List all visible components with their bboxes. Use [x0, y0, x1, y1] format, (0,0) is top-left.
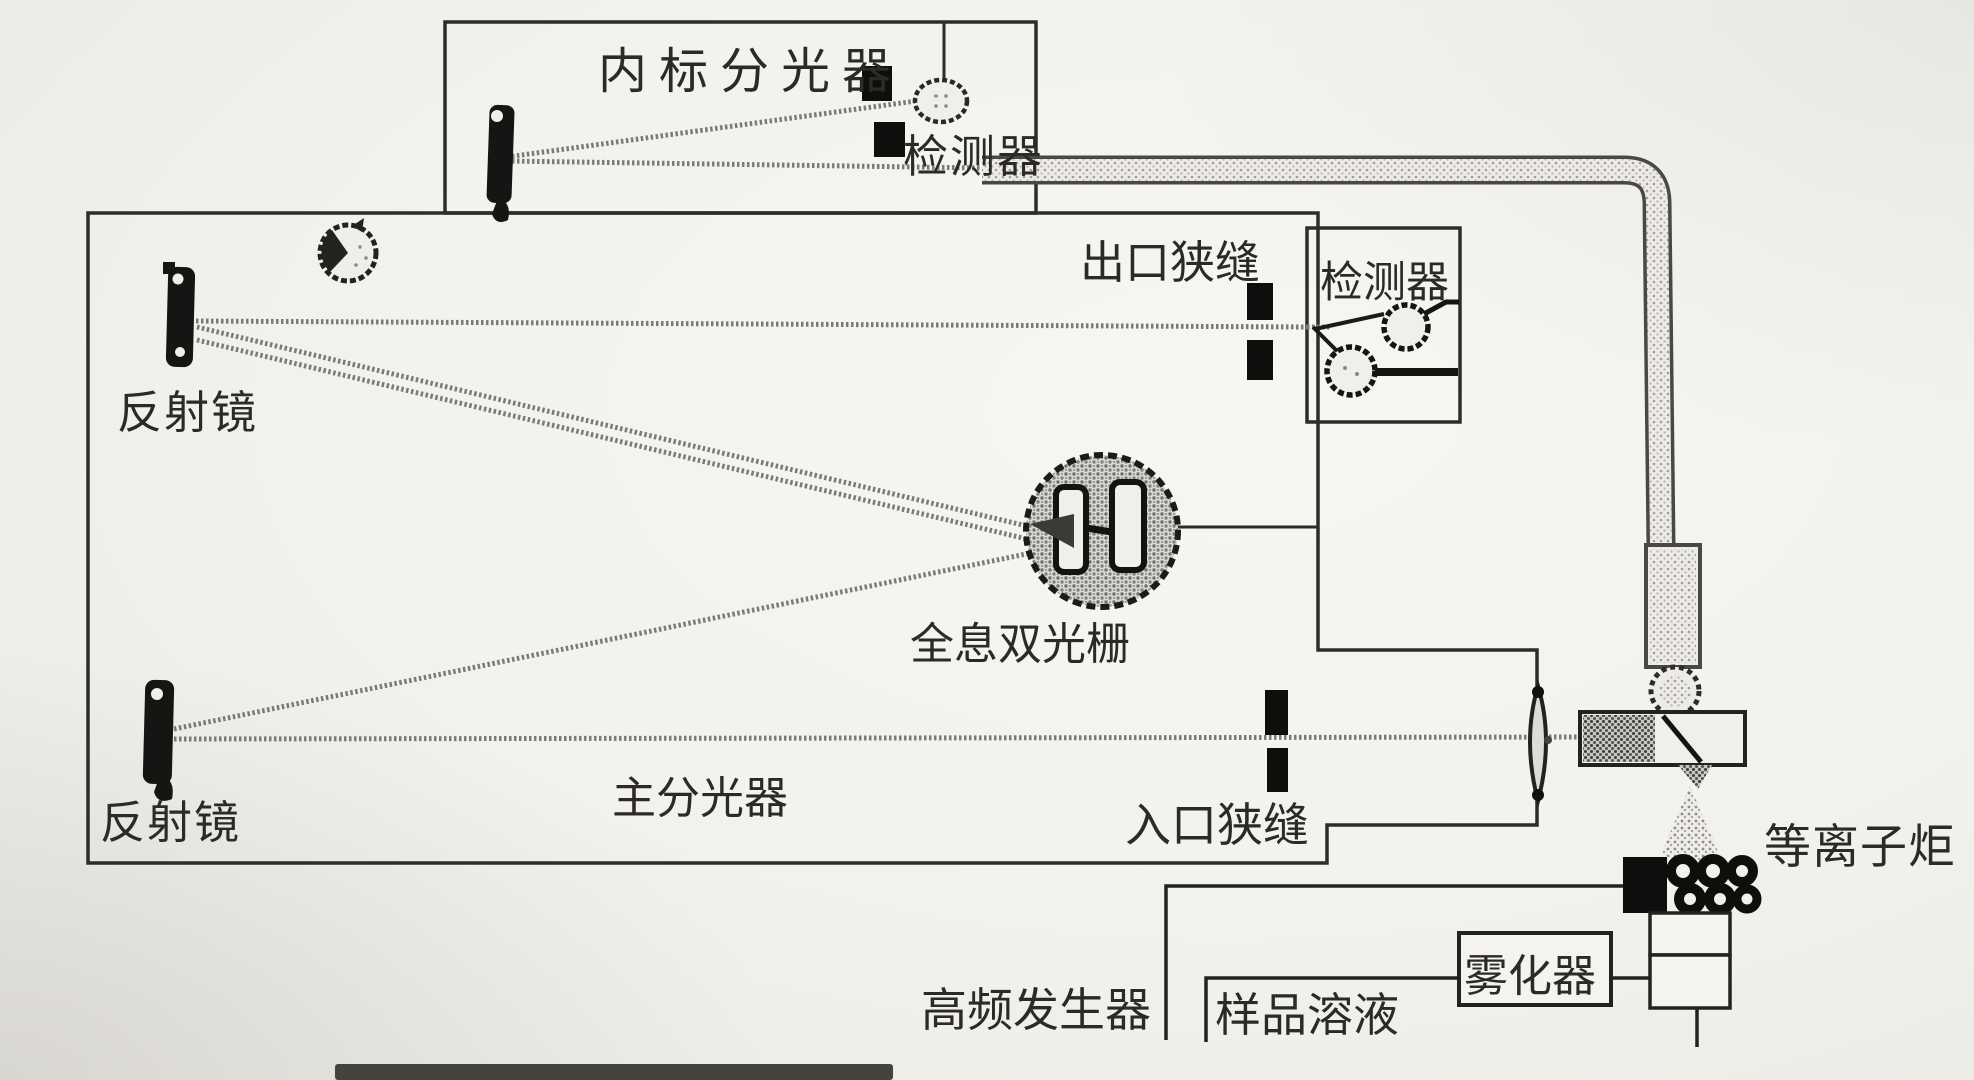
internal-detector-label: 检测器 [903, 120, 1044, 185]
internal-mirror-icon [486, 105, 514, 222]
internal-spectrometer-label: 内标分光器 [598, 32, 903, 103]
holographic-grating-icon [1026, 455, 1178, 607]
side-detector-label: 检测器 [1320, 248, 1449, 310]
beam-entrance-horizontal [174, 737, 1578, 739]
entrance-slit-label: 入口狭缝 [1125, 789, 1309, 855]
plasma-flame-icon [1661, 786, 1719, 861]
torch-optics-housing [1580, 712, 1745, 789]
mirror-lower-label: 反射镜 [100, 786, 241, 851]
main-spectrometer-label: 主分光器 [612, 762, 788, 826]
internal-beam-to-detector [507, 101, 916, 157]
nebulizer-label: 雾化器 [1464, 940, 1596, 1004]
light-pipe-expansion [1646, 545, 1700, 667]
lens-icon [1530, 686, 1552, 801]
wavelength-drive-icon [320, 218, 376, 281]
grating-label: 全息双光栅 [910, 608, 1130, 672]
exit-slit-label: 出口狭缝 [1080, 226, 1260, 291]
induction-coil-icon [1623, 857, 1757, 913]
exit-slit-icon [1247, 283, 1273, 380]
pmt-icon-2 [1327, 347, 1458, 395]
light-pipe-bulb-icon [1651, 667, 1699, 715]
beam-mirror-to-grating-pair [197, 327, 1031, 540]
beam-exit-horizontal [196, 321, 1307, 327]
beam-lower-mirror-to-grating [174, 553, 1031, 729]
sample-solution-label: 样品溶液 [1215, 979, 1399, 1045]
internal-detector-icon [915, 80, 967, 122]
hf-generator-label: 高频发生器 [921, 974, 1151, 1040]
entrance-slit-icon [1265, 690, 1288, 792]
upper-mirror-icon [163, 262, 195, 367]
scanned-diagram-page: 内标分光器 检测器 出口狭缝 检测器 反射镜 全息双光栅 反射镜 主分光器 入口… [0, 0, 1974, 1080]
torch-body-icon [1650, 913, 1730, 1008]
main-spectrometer-enclosure [88, 213, 1537, 863]
mirror-upper-label: 反射镜 [117, 376, 258, 441]
scan-artifact-bar [335, 1064, 893, 1080]
plasma-torch-label: 等离子炬 [1764, 808, 1956, 877]
lower-mirror-icon [143, 680, 175, 801]
